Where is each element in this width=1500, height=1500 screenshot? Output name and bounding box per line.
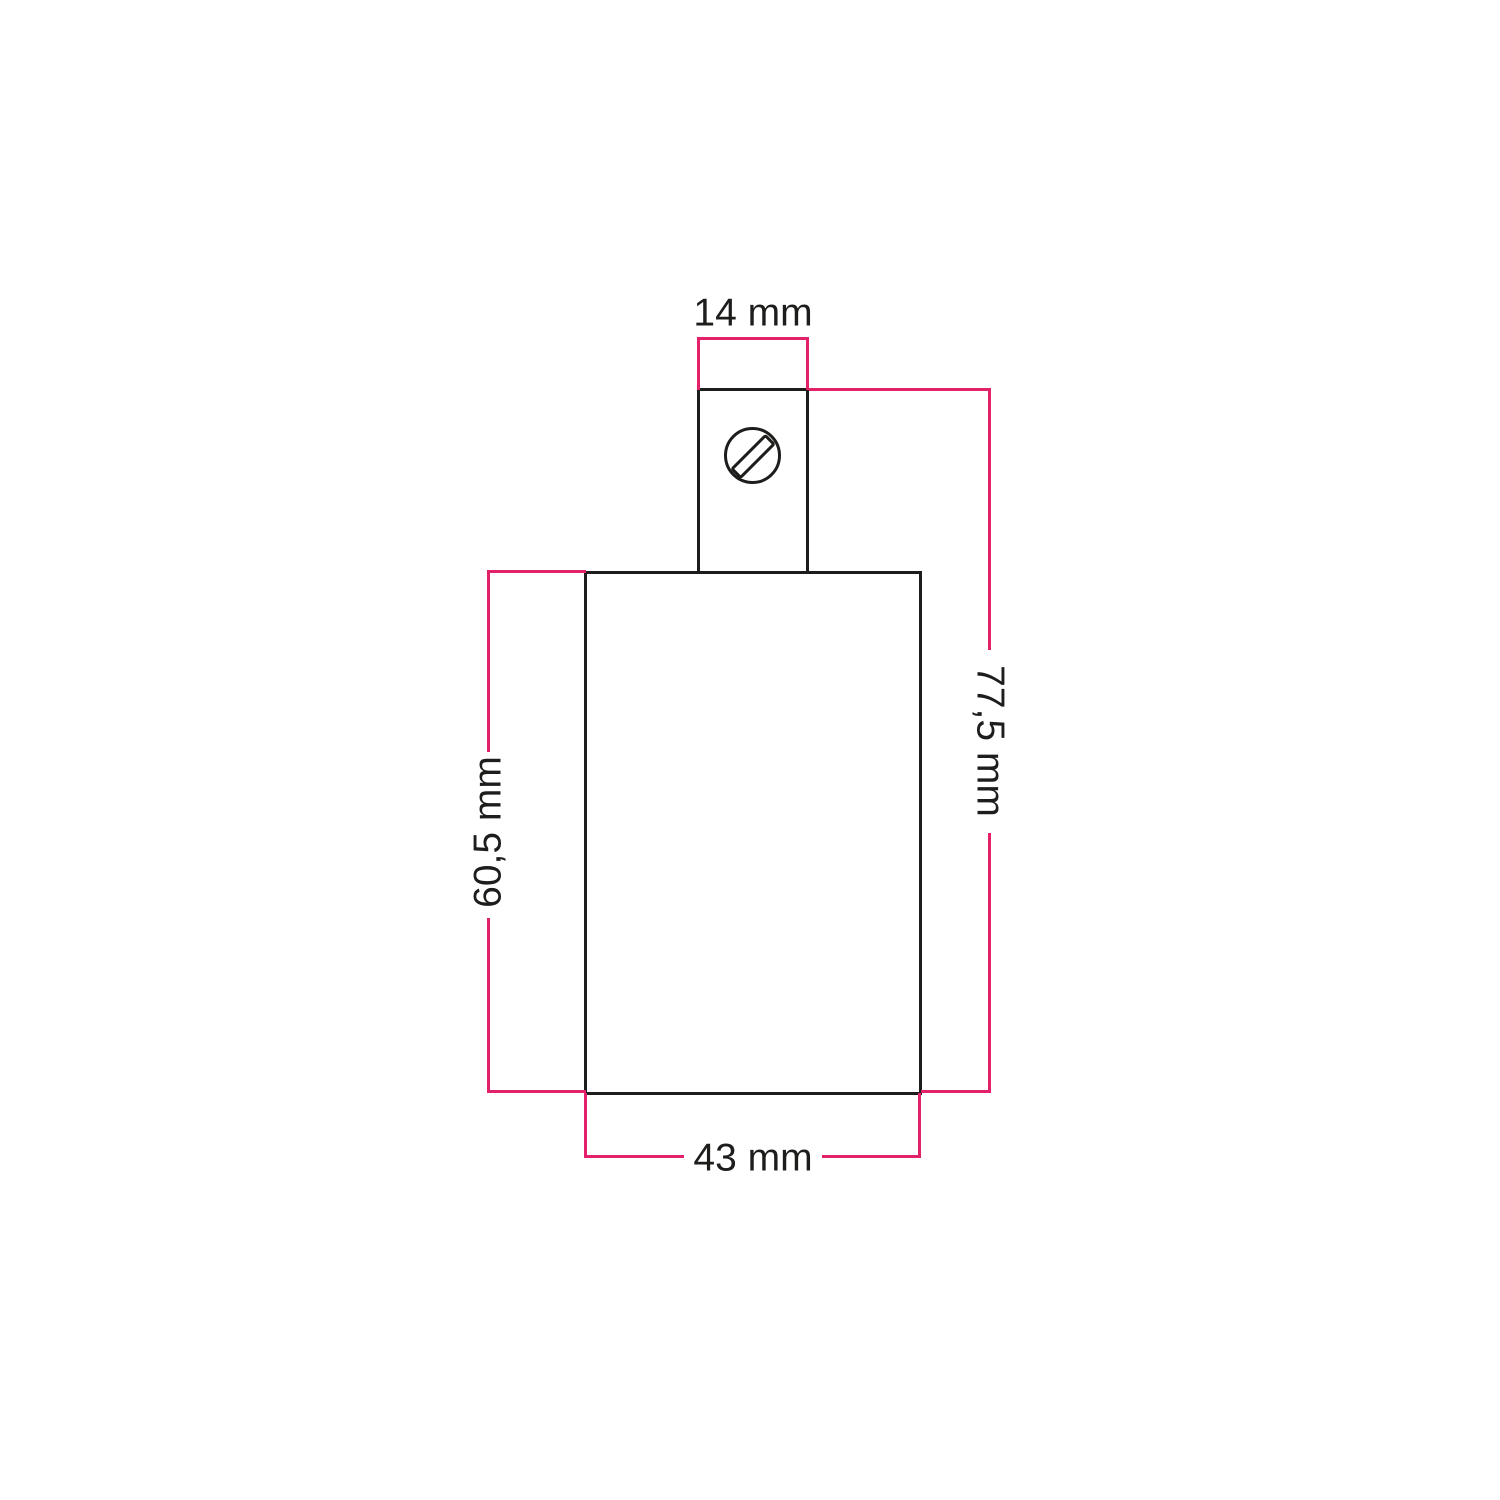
dim-cap-width-line-horizontal <box>697 337 809 340</box>
dim-cap-width-line-right-tick <box>806 337 809 390</box>
dim-label-cap-width: 14 mm <box>693 294 812 333</box>
dim-body-width-line-right-tick <box>918 1093 921 1158</box>
dim-label-body-height: 60,5 mm <box>469 756 508 908</box>
dim-overall-height-line-top-tick <box>809 388 991 391</box>
dim-body-height-line-bottom-tick <box>487 1090 586 1093</box>
dim-overall-height-line-lower-segment <box>988 833 991 1093</box>
dim-overall-height-line-upper-segment <box>988 388 991 650</box>
dim-body-height-line-top-tick <box>487 570 586 573</box>
dim-label-overall-height: 77,5 mm <box>971 665 1010 817</box>
dimension-diagram: 14 mm 77,5 mm 60,5 mm 43 mm <box>0 0 1500 1500</box>
dim-cap-width-line-left-tick <box>697 337 700 390</box>
dim-overall-height-line-bottom-tick <box>921 1090 991 1093</box>
body-outline-rect <box>584 571 922 1095</box>
dim-body-height-line-upper-segment <box>487 570 490 752</box>
dim-label-body-width: 43 mm <box>693 1139 812 1178</box>
dim-body-width-line-right-segment <box>822 1155 921 1158</box>
dim-body-width-line-left-tick <box>584 1093 587 1158</box>
dim-body-height-line-lower-segment <box>487 918 490 1093</box>
dim-body-width-line-left-segment <box>584 1155 684 1158</box>
